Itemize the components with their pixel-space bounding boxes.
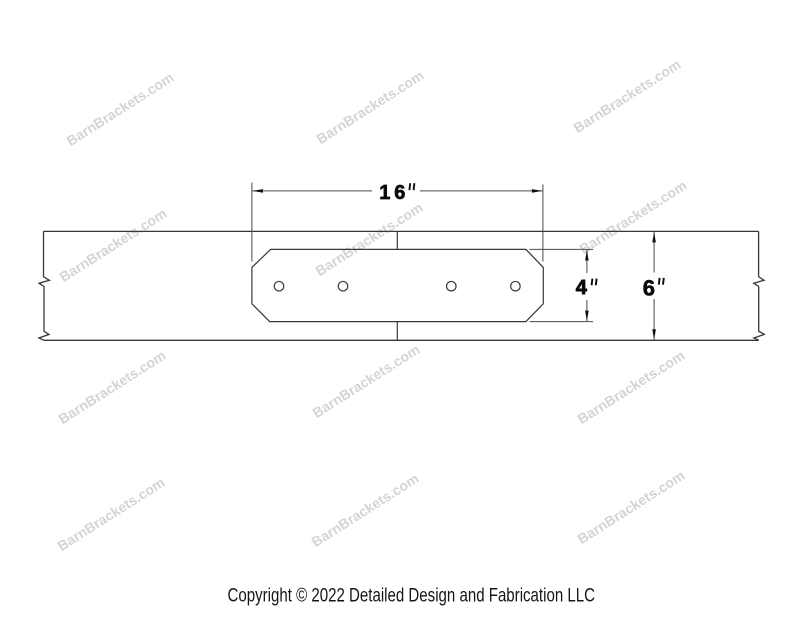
svg-text:16: 16 xyxy=(379,182,409,204)
svg-text:Copyright © 2022 Detailed Desi: Copyright © 2022 Detailed Design and Fab… xyxy=(228,584,596,606)
svg-text:6: 6 xyxy=(643,275,655,300)
svg-text:4: 4 xyxy=(576,277,588,299)
